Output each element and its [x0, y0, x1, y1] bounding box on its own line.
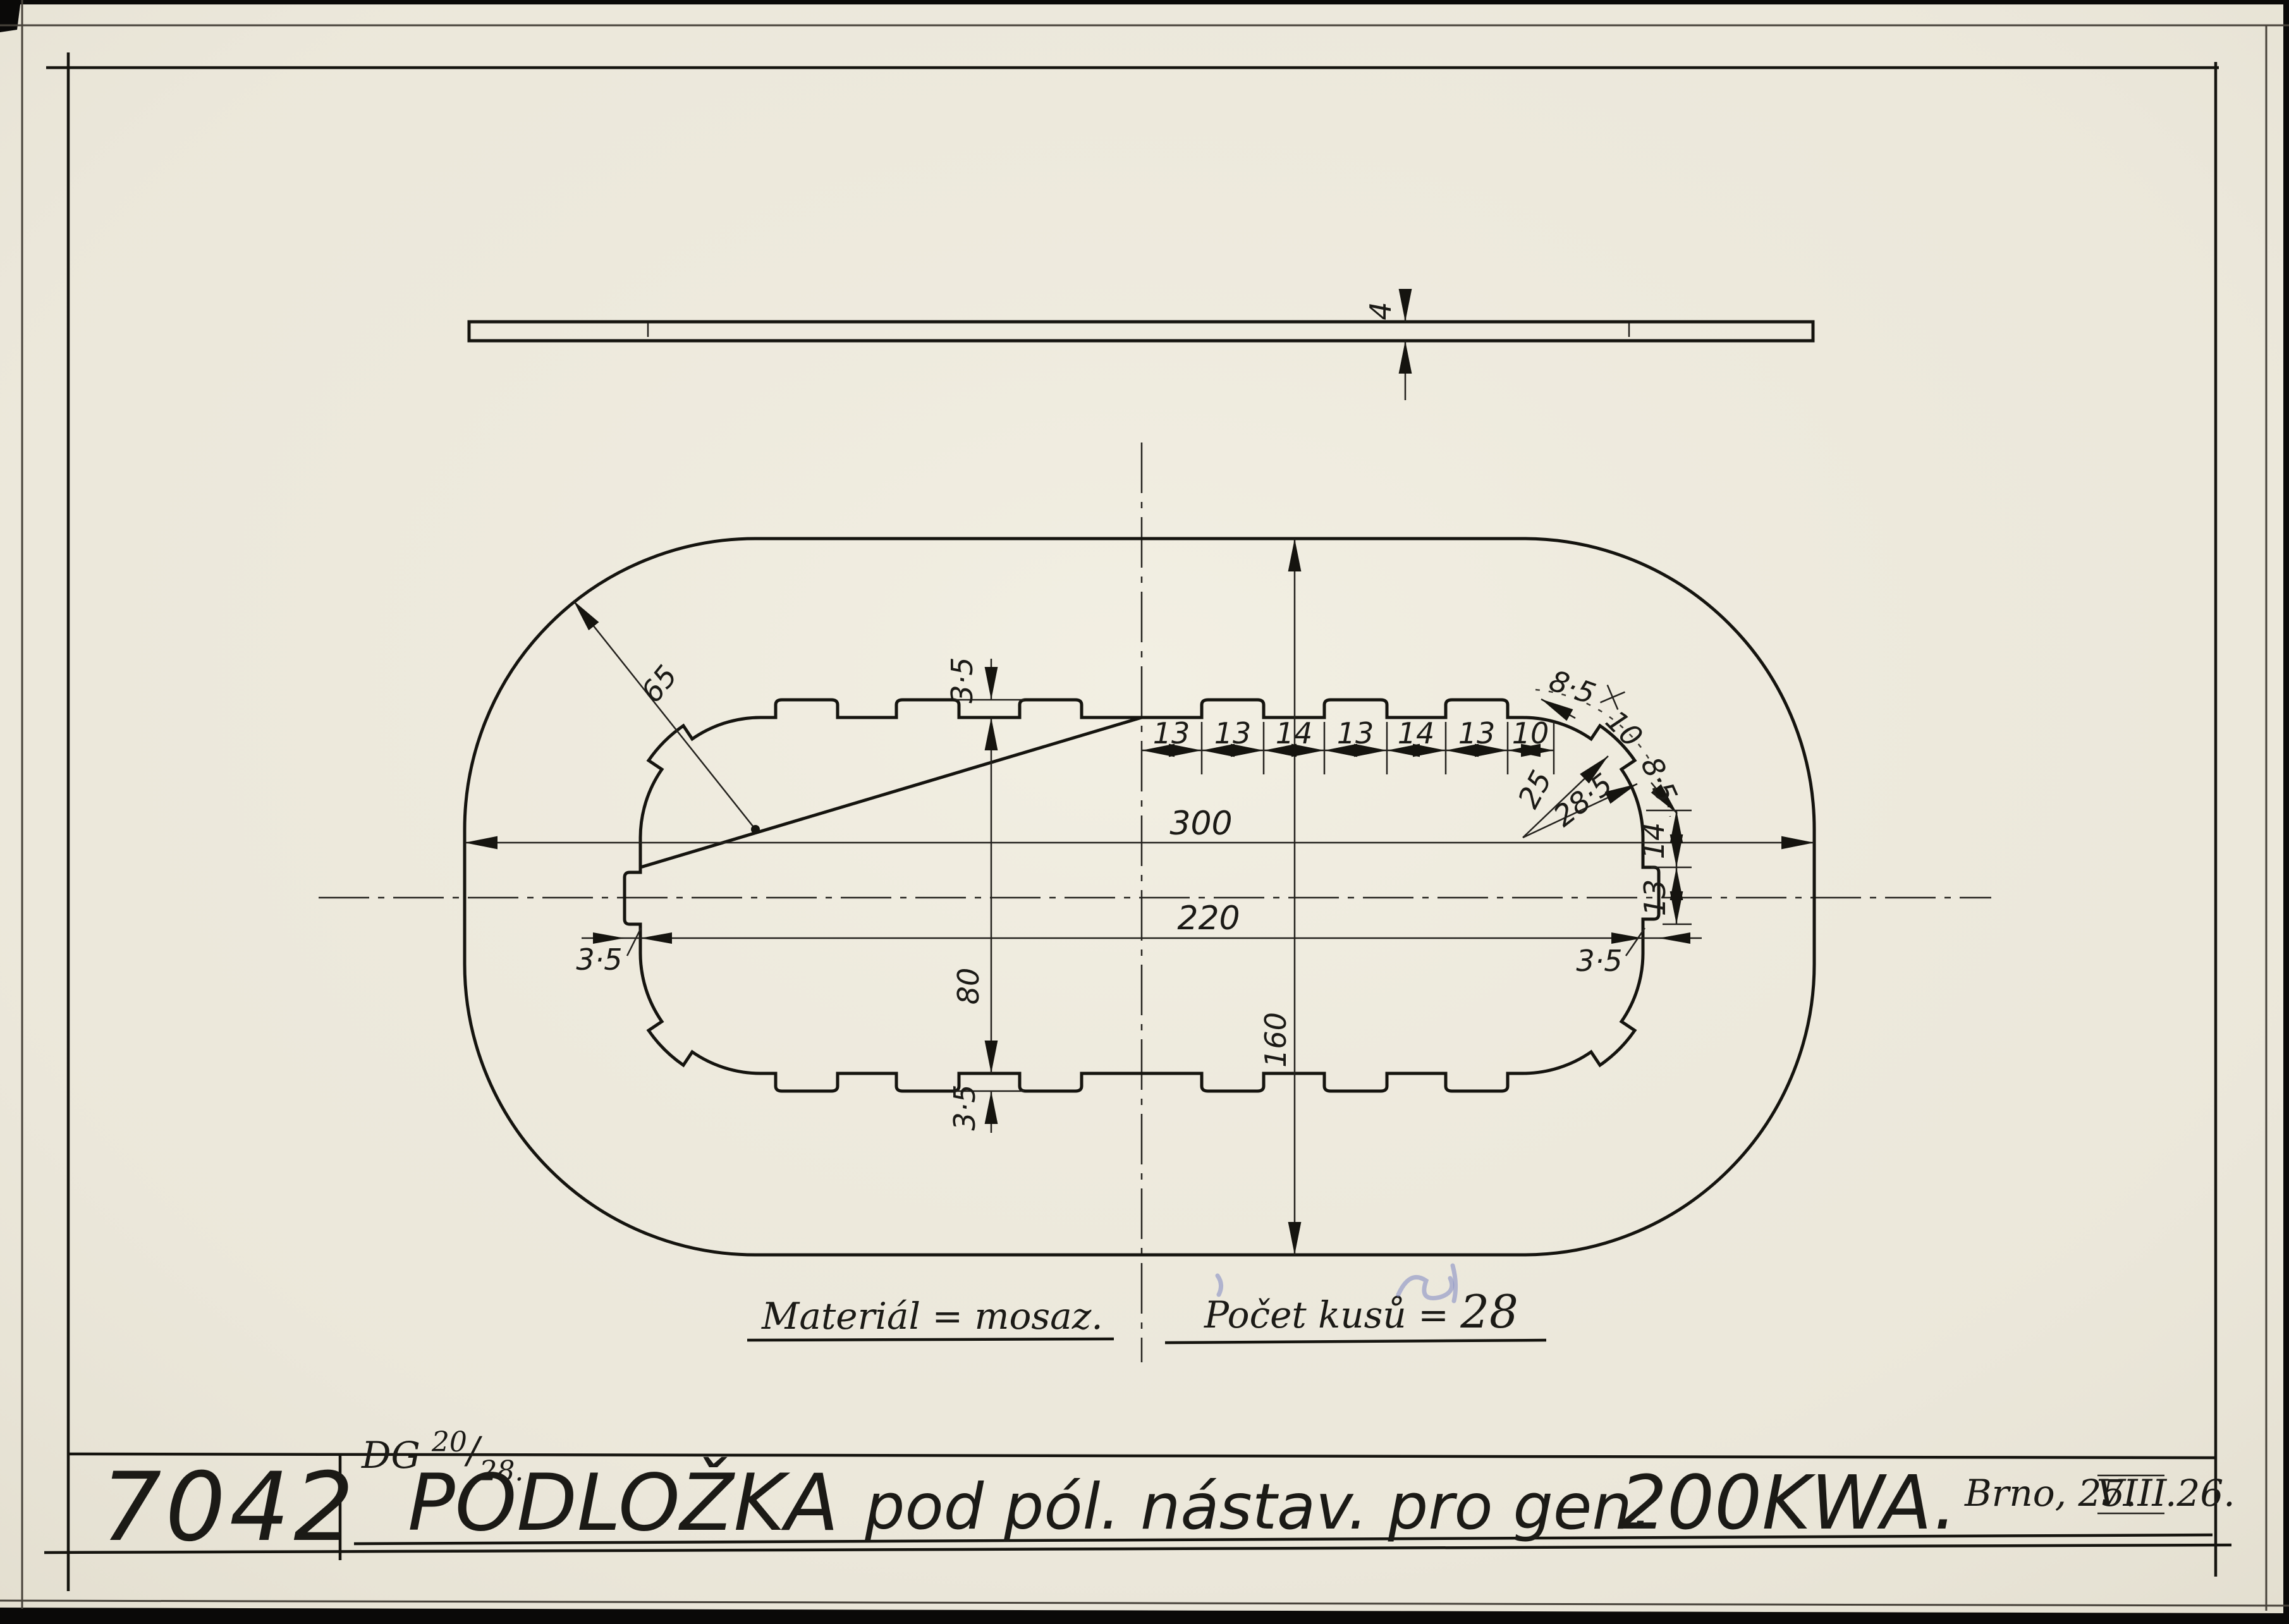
dim-notch-depth-left-label: 3·5 — [576, 943, 622, 977]
black-edge-top — [0, 0, 2289, 4]
date-month: VIII — [2097, 1472, 2168, 1515]
dim-notch-depth-right-label: 3·5 — [1576, 944, 1622, 978]
date-stamp: Brno, 25. VIII .26. — [1964, 1472, 2235, 1515]
dim-side-recess-label: 14 — [1637, 822, 1671, 860]
title-middle: pod pól. nástav. pro gen. — [864, 1470, 1652, 1544]
dim-notch-depth-bottom-label: 3·5 — [948, 1084, 982, 1130]
dim-side-tab-label: 13 — [1638, 879, 1672, 917]
drawing-number: 7042 — [101, 1453, 358, 1563]
chain-label-2: 13 — [1214, 716, 1252, 750]
chain-label-5: 14 — [1398, 716, 1435, 750]
black-edge-right — [2283, 0, 2289, 1624]
note-quantity: Počet kusů = 28 — [1204, 1285, 1518, 1338]
note-material: Materiál = mosaz. — [761, 1295, 1103, 1338]
dim-notch-depth-top-label: 3·5 — [945, 657, 979, 703]
radius-center-dot — [751, 825, 760, 834]
dim-thickness-label: 4 — [1364, 302, 1398, 320]
dim-outer-length-label: 300 — [1169, 805, 1232, 843]
dim-outer-height-label: 160 — [1259, 1012, 1293, 1068]
dim-inner-height-label: 80 — [951, 968, 986, 1005]
chain-label-7: 10 — [1512, 716, 1549, 750]
title-model: 200KWA. — [1620, 1459, 1957, 1546]
drawing-sheet: 7042 PODLOŽKA pod pól. nástav. pro gen. … — [0, 0, 2289, 1624]
chain-label-1: 13 — [1153, 716, 1190, 750]
dim-inner-length-label: 220 — [1177, 900, 1240, 937]
paper-shading — [0, 0, 2289, 1624]
photo-of-drawing: 7042 PODLOŽKA pod pól. nástav. pro gen. … — [0, 0, 2289, 1624]
date-suffix: .26. — [2165, 1472, 2235, 1515]
note-material-underline — [747, 1339, 1114, 1340]
chain-label-3: 14 — [1276, 716, 1313, 750]
chain-label-6: 13 — [1458, 716, 1496, 750]
chain-label-4: 13 — [1337, 716, 1374, 750]
